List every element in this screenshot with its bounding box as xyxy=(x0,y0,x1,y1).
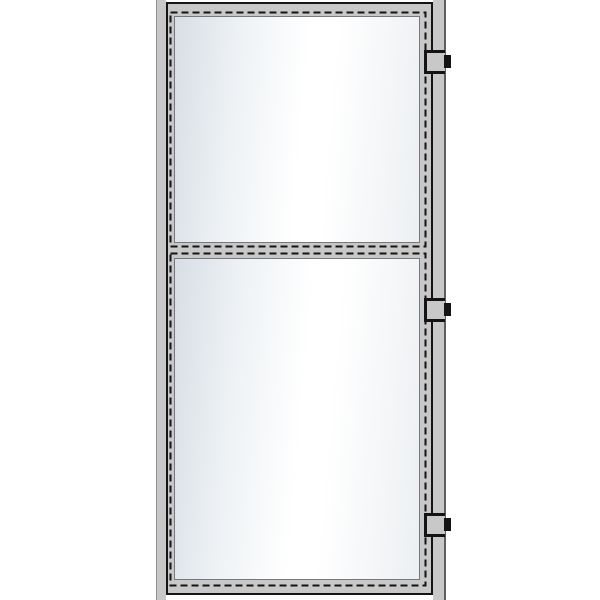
door-leaf xyxy=(166,2,433,595)
hinge-pin-icon xyxy=(444,518,451,531)
hinge-bottom xyxy=(424,513,445,537)
door-elevation-drawing xyxy=(0,0,600,600)
glass-panel-top xyxy=(174,16,420,243)
hinge-middle xyxy=(424,298,445,322)
frame-left-jamb xyxy=(156,0,166,600)
hinge-top xyxy=(424,50,445,74)
hinge-pin-icon xyxy=(444,55,451,68)
hinge-pin-icon xyxy=(444,303,451,316)
glass-panel-bottom xyxy=(174,258,420,580)
mid-rail xyxy=(168,243,431,258)
